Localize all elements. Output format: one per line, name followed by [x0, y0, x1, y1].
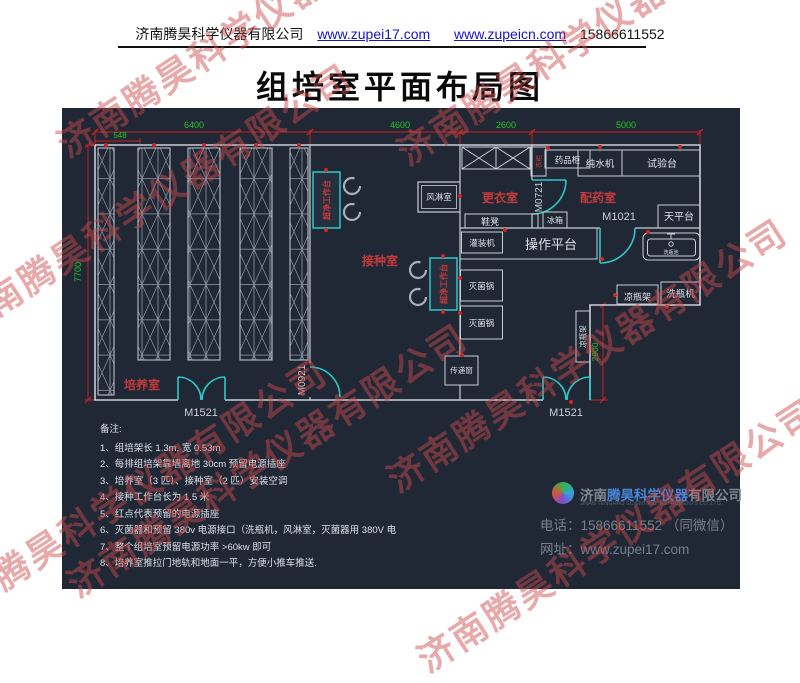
dim-2600: 2600: [496, 120, 516, 130]
faucet-icon: [667, 234, 675, 239]
wardrobe-label: 衣柜: [534, 155, 543, 169]
door-m1521-left-leaf2: [202, 377, 225, 400]
air-shower: 风淋室: [418, 182, 460, 212]
test-bench-label: 试验台: [647, 157, 677, 170]
notes-heading: 备注:: [100, 422, 440, 439]
bottle-washer-label: 洗瓶机: [666, 288, 695, 300]
footer-phone-label: 电话：: [540, 518, 581, 533]
equipment-labels: 药品柜 纯水机 试验台 天平台 鞋凳 冰箱 操作平台 灌装机 灭菌锅 灭菌锅 传…: [450, 155, 695, 375]
door-label-m1521-left: M1521: [184, 407, 218, 419]
clean-bench-2: 超净工作台: [410, 258, 457, 310]
cad-canvas: 6400 4600 2600 5000 548 7700 2900: [62, 108, 740, 589]
room-dispensing: 配药室: [580, 190, 616, 205]
sink-label: 洗瓶池: [663, 249, 678, 256]
door-m1521-right-leaf1: [543, 377, 566, 400]
notes-block: 备注: 1、组培架长 1.3m, 宽 0.53m 2、每排组培架靠墙离地 30c…: [100, 422, 440, 573]
footer-phone-line: 电话：15866611552 （同微信）: [540, 514, 733, 534]
clean-bench-2-label: 超净工作台: [439, 264, 449, 305]
shoe-bench-label: 鞋凳: [481, 216, 499, 227]
footer-phone-value: 15866611552 （同微信）: [581, 518, 734, 533]
platform-label: 操作平台: [525, 237, 577, 252]
inner-walls: [310, 145, 700, 400]
medicine-cabinet-label: 药品柜: [555, 155, 581, 165]
footer-url-line: 网址：www.zupei17.com: [540, 538, 689, 558]
dim-7700: 7700: [73, 262, 83, 282]
floor-plan: 6400 4600 2600 5000 548 7700 2900: [62, 108, 740, 420]
bottle-rack-h-label: 凉瓶架: [624, 291, 651, 302]
door-label-m1521-right: M1521: [549, 407, 583, 419]
header-link-zupeicn[interactable]: www.zupeicn.com: [454, 26, 566, 42]
door-m1521-left-leaf1: [178, 377, 201, 400]
door-m0921-arc: [310, 367, 340, 397]
note-item: 5、红点代表预留的电源插座: [100, 507, 440, 524]
note-item: 2、每排组培架靠墙离地 30cm 预留电源插座: [100, 457, 440, 474]
header-link-zupei17[interactable]: www.zupei17.com: [317, 26, 430, 42]
rack-1: [98, 148, 114, 395]
stool: [410, 262, 426, 278]
company-logo-icon: [552, 482, 574, 504]
door-label-m0721: M0721: [534, 181, 545, 212]
clean-bench-1-label: 超净工作台: [322, 180, 332, 221]
header-divider: [118, 46, 646, 48]
stool: [344, 178, 360, 194]
air-shower-label: 风淋室: [426, 192, 452, 202]
sterilizer-2-label: 灭菌锅: [469, 318, 495, 328]
sterilizer-1-label: 灭菌锅: [469, 281, 495, 291]
filling-machine-label: 灌装机: [469, 238, 495, 248]
pass-window-label: 传递窗: [450, 365, 473, 375]
locker-cabinets: [462, 147, 530, 169]
header-phone: 15866611552: [580, 26, 665, 42]
note-item: 6、灭菌器和预留 380v 电源接口（洗瓶机，风淋室，灭菌器用 380V 电: [100, 523, 440, 540]
door-m1521-right-leaf2: [567, 377, 590, 400]
door-label-m0921: M0921: [297, 364, 308, 395]
header-company: 济南腾昊科学仪器有限公司: [135, 26, 303, 42]
footer-url-label: 网址：: [540, 542, 581, 557]
dim-548: 548: [113, 131, 127, 140]
balance-label: 天平台: [664, 210, 694, 223]
outer-walls: [95, 145, 700, 400]
rack-5: [290, 148, 308, 360]
stool: [344, 204, 360, 220]
rack-2: [138, 148, 170, 360]
stool: [410, 289, 426, 305]
door-label-m1021: M1021: [602, 211, 636, 223]
room-culture: 培养室: [124, 377, 160, 392]
footer-url-value: www.zupei17.com: [581, 542, 690, 557]
room-changing: 更衣室: [482, 190, 518, 205]
dim-4600: 4600: [390, 120, 410, 130]
rack-4: [240, 148, 272, 360]
page-title: 组培室平面布局图: [0, 62, 800, 108]
note-item: 4、接种工作台长为 1.5 米: [100, 490, 440, 507]
rack-3: [188, 148, 220, 360]
door-m1021-arc: [600, 228, 635, 263]
dim-2900: 2900: [590, 342, 600, 361]
page-header: 济南腾昊科学仪器有限公司 www.zupei17.com www.zupeicn…: [0, 0, 800, 44]
equipment-boxes: [445, 150, 700, 385]
bottle-rack-v-label: 凉瓶架: [578, 325, 588, 348]
fridge-label: 冰箱: [547, 215, 563, 225]
culture-racks: [98, 148, 308, 395]
note-item: 1、组培架长 1.3m, 宽 0.53m: [100, 441, 440, 458]
footer-company-english: JINAN TENGHAO SCIENTIFIC INSTRUMENTS CO.…: [580, 501, 722, 507]
note-item: 7、整个组培室预留电源功率 >60kw 即可: [100, 540, 440, 557]
sink-drain-icon: [669, 242, 673, 246]
shoe-bench-box: [465, 214, 538, 228]
room-inoculation: 接种室: [362, 253, 398, 268]
note-item: 3、培养室（3 匹）、接种室（2 匹）安装空调: [100, 474, 440, 491]
water-machine-label: 纯水机: [586, 158, 615, 170]
clean-bench-1: 超净工作台: [313, 172, 360, 228]
dim-5000: 5000: [616, 120, 636, 130]
note-item: 8、培养室推拉门地轨和地面一平，方便小推车推送.: [100, 556, 440, 573]
dim-6400: 6400: [184, 120, 204, 130]
